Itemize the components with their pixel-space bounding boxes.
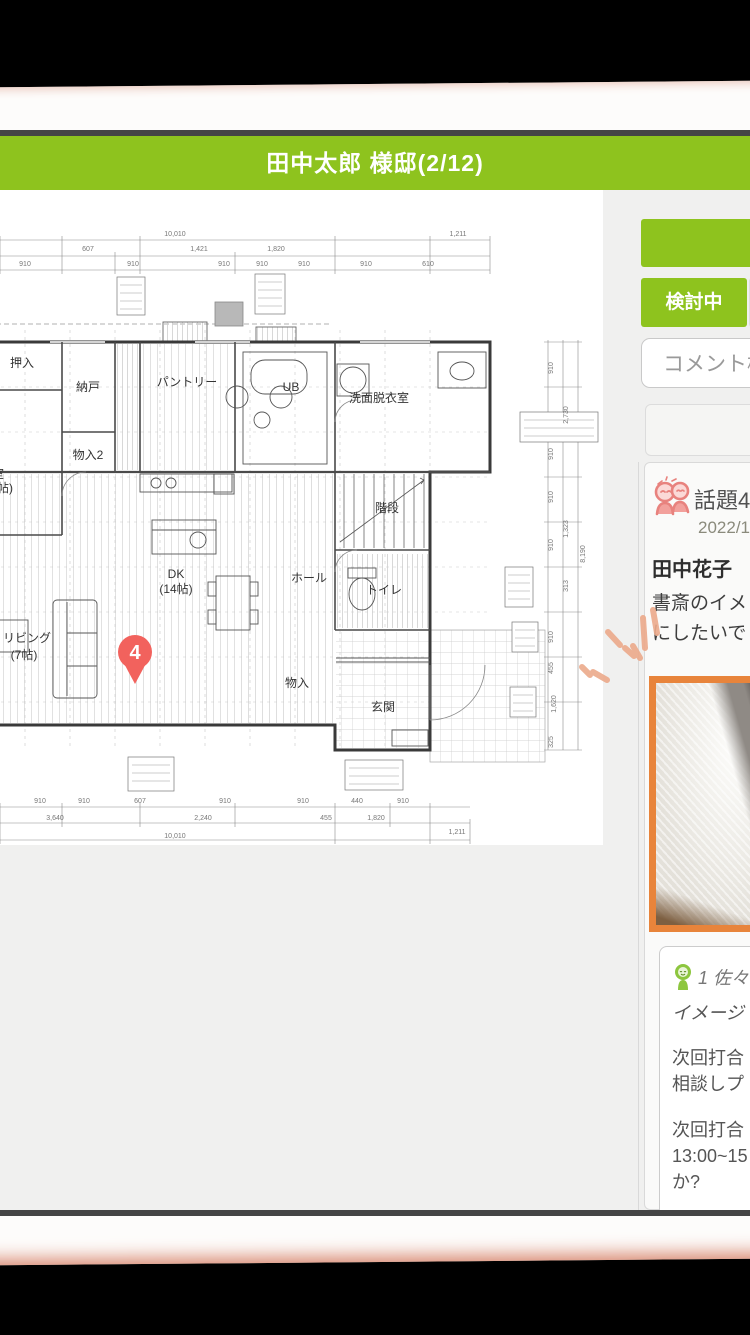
- topic-message-line2: にしたいで: [652, 619, 747, 649]
- app-header: 田中太郎 様邸(2/12): [0, 136, 750, 190]
- svg-text:1,620: 1,620: [551, 695, 558, 713]
- page-title: 田中太郎 様邸(2/12): [0, 136, 750, 190]
- svg-text:押入: 押入: [10, 356, 34, 370]
- svg-text:1,820: 1,820: [367, 815, 385, 822]
- svg-text:910: 910: [297, 798, 309, 805]
- svg-text:(帖): (帖): [0, 480, 13, 495]
- svg-text:607: 607: [82, 246, 94, 253]
- svg-text:910: 910: [19, 261, 31, 268]
- reply-paragraph-2: 次回打合 相談しプ: [672, 1045, 750, 1097]
- svg-text:(14帖): (14帖): [159, 581, 192, 596]
- svg-text:440: 440: [351, 798, 363, 805]
- svg-text:ホール: ホール: [291, 571, 327, 585]
- svg-text:910: 910: [218, 261, 230, 268]
- svg-text:3,640: 3,640: [46, 815, 64, 822]
- svg-text:UB: UB: [283, 380, 300, 394]
- comment-search-input[interactable]: コメント検索: [641, 338, 750, 388]
- topic-message: 書斎のイメ にしたいで: [652, 589, 747, 649]
- svg-text:納戸: 納戸: [76, 380, 100, 394]
- topic-title: 話題4: [694, 483, 750, 515]
- couple-talk-icon: [652, 476, 692, 518]
- app-screen: 田中太郎 様邸(2/12): [0, 130, 750, 1216]
- svg-text:313: 313: [563, 580, 570, 592]
- svg-text:玄関: 玄関: [371, 699, 395, 714]
- svg-text:10,010: 10,010: [164, 231, 186, 238]
- topic-author: 田中花子: [652, 553, 732, 582]
- map-pin-number: 4: [129, 642, 141, 664]
- svg-text:2,730: 2,730: [563, 406, 570, 424]
- svg-text:1,323: 1,323: [563, 520, 570, 538]
- svg-text:910: 910: [397, 798, 409, 805]
- svg-text:325: 325: [548, 736, 555, 748]
- reply-header: 1 佐々: [672, 963, 750, 991]
- svg-text:1,820: 1,820: [267, 246, 285, 253]
- topic-message-line1: 書斎のイメ: [652, 589, 747, 619]
- svg-text:物入2: 物入2: [73, 448, 104, 462]
- svg-text:1,211: 1,211: [449, 829, 466, 836]
- svg-text:パントリー: パントリー: [157, 375, 218, 389]
- svg-text:リビング: リビング: [3, 631, 51, 645]
- svg-text:910: 910: [360, 261, 372, 268]
- svg-text:910: 910: [548, 448, 555, 460]
- svg-text:2,240: 2,240: [194, 815, 212, 822]
- svg-text:910: 910: [548, 539, 555, 551]
- reply-p2-line2: 相談しプ: [672, 1071, 750, 1097]
- svg-text:910: 910: [256, 261, 268, 268]
- svg-text:910: 910: [298, 261, 310, 268]
- reply-line1: イメージ: [672, 999, 750, 1025]
- attachment-photo[interactable]: [649, 676, 750, 932]
- svg-text:910: 910: [219, 798, 231, 805]
- svg-text:607: 607: [134, 798, 146, 805]
- svg-text:910: 910: [34, 798, 46, 805]
- svg-text:1,211: 1,211: [450, 231, 467, 238]
- comment-list-rail: [638, 462, 639, 1210]
- svg-text:610: 610: [422, 261, 434, 268]
- svg-text:455: 455: [320, 815, 332, 822]
- svg-text:DK: DK: [168, 567, 185, 581]
- svg-text:8,190: 8,190: [580, 545, 587, 563]
- floorplan-drawing: 押入納戸パントリーUB洗面脱衣室物入2室(帖)DK(14帖)リビング(7帖)ホー…: [0, 190, 603, 845]
- reply-p2-line1: 次回打合: [672, 1045, 750, 1071]
- topic-date: 2022/1: [698, 518, 750, 538]
- svg-text:1,421: 1,421: [190, 246, 208, 253]
- svg-text:洗面脱衣室: 洗面脱衣室: [349, 390, 409, 405]
- reply-author: 1 佐々: [698, 964, 749, 990]
- svg-text:910: 910: [548, 491, 555, 503]
- svg-text:10,010: 10,010: [164, 833, 186, 840]
- reply-p3-line1: 次回打合: [672, 1117, 750, 1143]
- search-placeholder: コメント検索: [663, 348, 750, 378]
- svg-text:910: 910: [78, 798, 90, 805]
- person-icon: [672, 963, 694, 991]
- svg-text:トイレ: トイレ: [366, 583, 402, 597]
- svg-text:910: 910: [548, 631, 555, 643]
- reply-p3-line2: 13:00~15: [672, 1143, 750, 1169]
- svg-text:階段: 階段: [375, 500, 399, 515]
- floorplan-canvas[interactable]: 押入納戸パントリーUB洗面脱衣室物入2室(帖)DK(14帖)リビング(7帖)ホー…: [0, 190, 603, 845]
- action-button[interactable]: [641, 219, 750, 267]
- svg-text:(7帖): (7帖): [11, 647, 38, 662]
- screenshot-stage: 田中太郎 様邸(2/12): [0, 0, 750, 1335]
- svg-text:物入: 物入: [285, 676, 309, 690]
- svg-text:910: 910: [548, 362, 555, 374]
- reply-paragraph-3: 次回打合 13:00~15 か?: [672, 1117, 750, 1195]
- svg-text:455: 455: [548, 662, 555, 674]
- reply-p3-line3: か?: [672, 1169, 750, 1195]
- svg-text:910: 910: [127, 261, 139, 268]
- reply-card[interactable]: 1 佐々 イメージ 次回打合 相談しプ 次回打合 13:00~15 か?: [659, 946, 750, 1216]
- svg-text:室: 室: [0, 466, 4, 481]
- filter-box[interactable]: [645, 404, 750, 456]
- status-tab-kentochu[interactable]: 検討中: [641, 278, 747, 327]
